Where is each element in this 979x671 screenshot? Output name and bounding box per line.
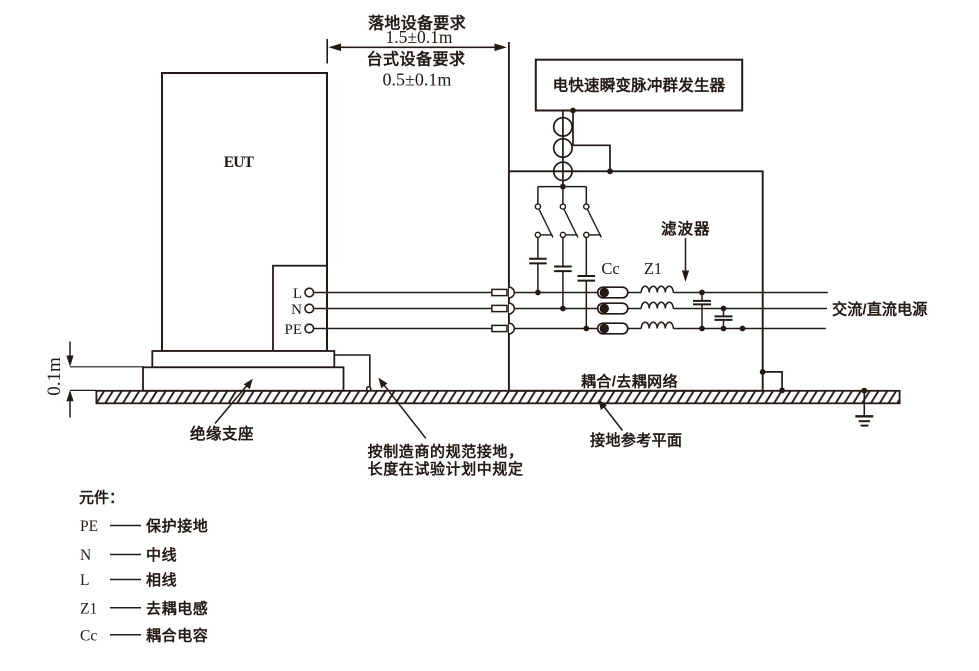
svg-text:电快速瞬变脉冲群发生器: 电快速瞬变脉冲群发生器 xyxy=(553,76,726,95)
svg-text:Cc: Cc xyxy=(601,259,619,278)
svg-text:元件：: 元件： xyxy=(79,489,124,507)
svg-text:L: L xyxy=(80,572,89,589)
svg-text:Z1: Z1 xyxy=(644,259,662,278)
svg-text:台式设备要求: 台式设备要求 xyxy=(366,50,466,69)
svg-text:滤波器: 滤波器 xyxy=(661,219,711,238)
svg-text:1.5±0.1m: 1.5±0.1m xyxy=(386,27,453,47)
svg-text:PE: PE xyxy=(284,322,302,338)
svg-text:相线: 相线 xyxy=(146,571,177,589)
svg-text:PE: PE xyxy=(80,518,98,535)
svg-text:去耦电感: 去耦电感 xyxy=(146,599,208,617)
svg-text:EUT: EUT xyxy=(224,154,255,171)
svg-text:N: N xyxy=(291,302,302,318)
svg-text:0.1m: 0.1m xyxy=(44,357,65,396)
svg-text:N: N xyxy=(80,547,91,564)
svg-text:Cc: Cc xyxy=(80,627,97,644)
svg-text:L: L xyxy=(293,286,302,302)
svg-text:接地参考平面: 接地参考平面 xyxy=(590,432,682,450)
svg-text:耦合/去耦网络: 耦合/去耦网络 xyxy=(581,373,678,391)
svg-text:按制造商的规范接地，: 按制造商的规范接地， xyxy=(368,443,524,461)
svg-text:中线: 中线 xyxy=(146,546,177,564)
svg-text:交流/直流电源: 交流/直流电源 xyxy=(832,301,928,319)
svg-text:Z1: Z1 xyxy=(80,600,97,617)
svg-text:0.5±0.1m: 0.5±0.1m xyxy=(383,70,452,90)
svg-text:绝缘支座: 绝缘支座 xyxy=(190,424,254,443)
svg-text:耦合电容: 耦合电容 xyxy=(146,626,208,644)
svg-text:长度在试验计划中规定: 长度在试验计划中规定 xyxy=(368,460,524,478)
svg-text:保护接地: 保护接地 xyxy=(145,517,208,535)
